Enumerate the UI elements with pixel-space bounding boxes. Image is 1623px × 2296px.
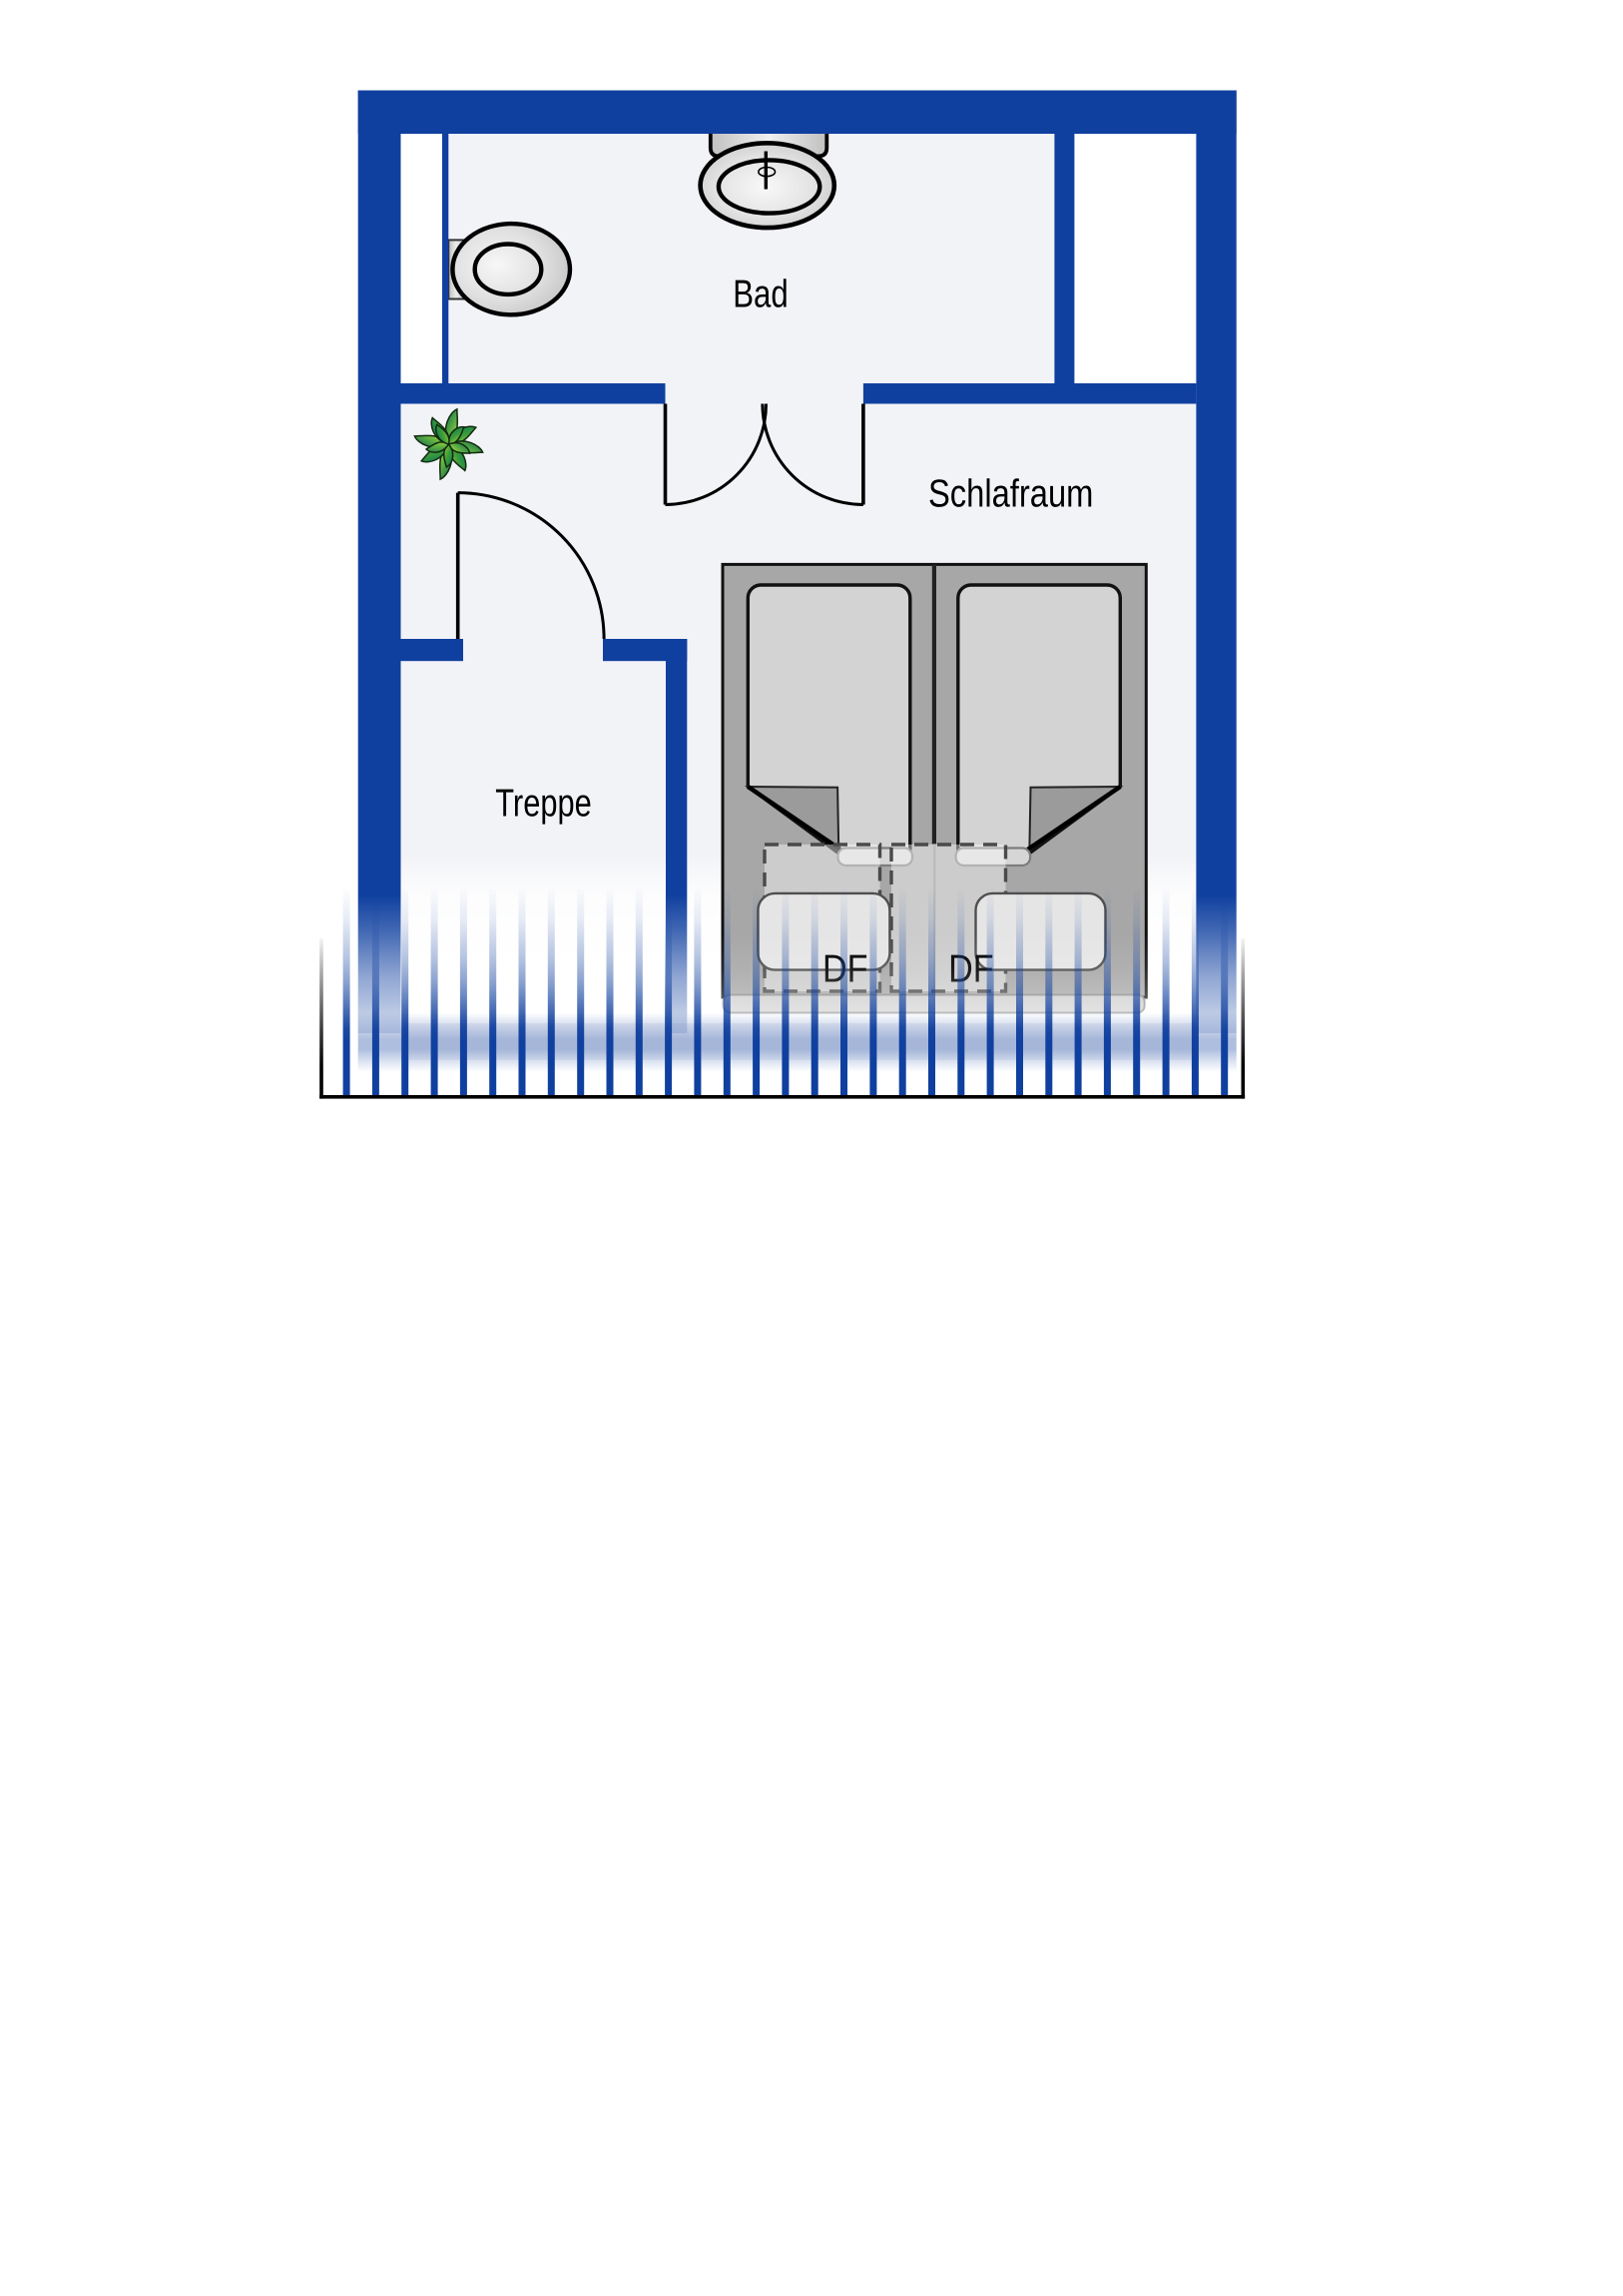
- svg-text:Bad: Bad: [733, 274, 789, 316]
- svg-text:Schlafraum: Schlafraum: [928, 473, 1094, 516]
- svg-text:Treppe: Treppe: [495, 782, 592, 825]
